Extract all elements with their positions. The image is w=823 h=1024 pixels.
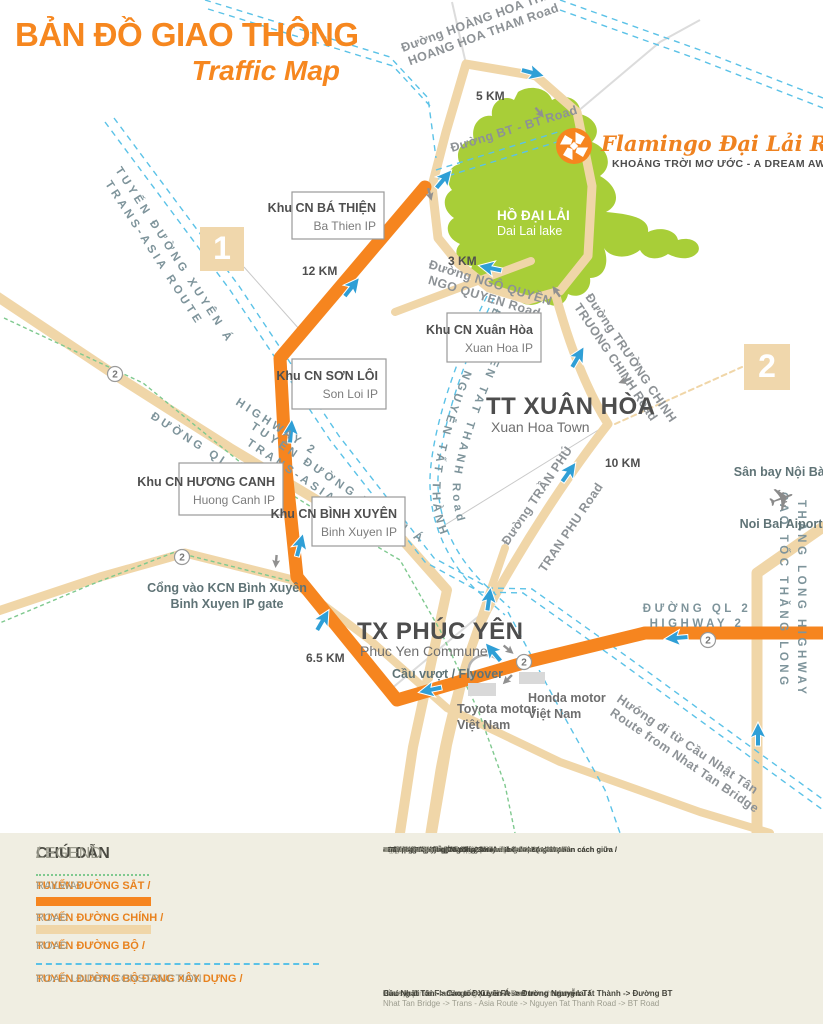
badge-2: 2 [744,344,790,390]
badge-1: 1 [200,227,244,271]
map-canvas: 2 2 2 2 BẢN ĐỒ GIAO THÔNG Traffic Map Fl… [0,0,823,833]
lake-name-en: Dai Lai lake [497,224,562,238]
page-title-en: Traffic Map [192,55,340,86]
legend-label-en: ROAD [36,912,68,924]
ip-name-vi: Khu CN SƠN LÔI [276,368,378,383]
distance-6-5km: 6.5 KM [306,651,345,665]
poi-toyota: Toyota motor Việt Nam [457,683,536,732]
highway2-shield: 2 [179,553,185,564]
airport-name-en: Noi Bai Aiport [740,517,823,531]
note-en: 3m wide median [383,845,438,854]
ip-name-en: Binh Xuyen IP [321,525,397,539]
legend-label-en: RAILWAY [36,880,83,892]
ip-box-xuan-hoa: Khu CN Xuân Hòa Xuan Hoa IP [426,313,541,362]
ip-box-son-loi: Khu CN SƠN LÔI Son Loi IP [276,359,386,409]
legend-panel: CHÚ DẪN / LEGEND TUYẾN ĐƯỜNG SẮT / RAILW… [0,833,823,1024]
road-label-en: TRANS-ASIA ROUTE [102,179,205,328]
road-label-en: Route from Nhat Tan Bridge [608,705,762,815]
toyota-building [468,683,496,696]
label-ql2-right-en: HIGHWAY 2 [650,618,745,630]
future-route-block: Hướng đi tới Flamingo Đại Lải Resort tro… [383,989,823,1009]
lake-name-vi: HỒ ĐẠI LẢI [497,208,570,223]
ip-name-en: Son Loi IP [323,387,378,401]
distance-5km: 5 KM [476,89,505,103]
badge-2-number: 2 [758,348,776,384]
legend-railway-swatch [36,874,149,876]
gate-label-en: Binh Xuyen IP gate [171,597,284,611]
legend-construction-swatch [36,963,319,965]
ip-name-vi: Khu CN HƯƠNG CANH [137,475,275,489]
road-label-vi: Hướng đi từ Cầu Nhật Tân [614,692,760,797]
airport-name-vi: Sân bay Nội Bài [734,465,823,479]
label-ql2-right-vi: ĐƯỜNG QL 2 [643,602,751,615]
resort-name: Flamingo Đại Lải Resort [600,131,823,156]
poi-flyover-label: Cầu vượt / Flyover [392,667,503,681]
page-title-vi: BẢN ĐỒ GIAO THÔNG [15,15,359,53]
legend-label-en: ROAD UNDER CONSTRUCTION [36,973,202,985]
future-route-vi: Cầu Nhật Tân -> Cao tốc Xuyên Á -> Đường… [383,989,823,999]
label-hoang-hoa-tham: Đường HOÀNG HOA THÁM HOANG HOA THAM Road [399,0,570,69]
honda-building [519,672,545,684]
distance-3km: 3 KM [448,254,477,268]
ip-name-en: Ba Thien IP [314,219,376,233]
legend-title-en: LEGEND [36,845,102,863]
traffic-map-page: { "header": {"title_vi": "BẢN ĐỒ GIAO TH… [0,0,823,1024]
badge-1-number: 1 [213,230,231,266]
ip-name-en: Huong Canh IP [193,493,275,507]
honda-label-2: Việt Nam [528,707,581,721]
future-route-en: Nhat Tan Bridge -> Trans - Asia Route ->… [383,999,823,1009]
legend-road-swatch [36,925,151,934]
ip-name-vi: Khu CN BÌNH XUYÊN [271,506,397,521]
ip-name-vi: Khu CN BÁ THIỆN [268,200,376,215]
honda-label-1: Honda motor [528,691,606,705]
town-phuc-yen-en: Phuc Yen Commune [360,643,488,659]
distance-10km: 10 KM [605,456,640,470]
resort-tagline: KHOẢNG TRỜI MƠ ƯỚC - A DREAM AWAY [612,157,823,170]
gate-label-vi: Cổng vào KCN Bình Xuyên [147,581,307,595]
ip-name-en: Xuan Hoa IP [465,341,533,355]
traffic-map-svg: 2 2 2 2 BẢN ĐỒ GIAO THÔNG Traffic Map Fl… [0,0,823,833]
highway2-shield: 2 [705,636,711,647]
ip-box-ba-thien: Khu CN BÁ THIỆN Ba Thien IP [268,192,384,239]
highway2-shield: 2 [112,370,118,381]
legend-main-road-swatch [36,897,151,906]
toyota-label-2: Việt Nam [457,718,510,732]
ip-box-huong-canh: Khu CN HƯƠNG CANH Huong Canh IP [137,463,283,515]
town-xuan-hoa-vi: TT XUÂN HÒA [486,392,656,420]
town-xuan-hoa-en: Xuan Hoa Town [491,419,590,435]
poi-airport: Sân bay Nội Bài ✈ Noi Bai Aiport [734,465,823,531]
ip-name-vi: Khu CN Xuân Hòa [426,323,534,337]
poi-gate: Cổng vào KCN Bình Xuyên Binh Xuyen IP ga… [147,581,307,611]
airplane-icon: ✈ [763,478,801,521]
highway2-shield: 2 [521,658,527,669]
legend-label-en: ROAD [36,940,68,952]
distance-12km: 12 KM [302,264,337,278]
poi-honda: Honda motor Việt Nam [519,672,606,721]
town-phuc-yen-vi: TX PHÚC YÊN [357,617,523,645]
toyota-label-1: Toyota motor [457,702,536,716]
